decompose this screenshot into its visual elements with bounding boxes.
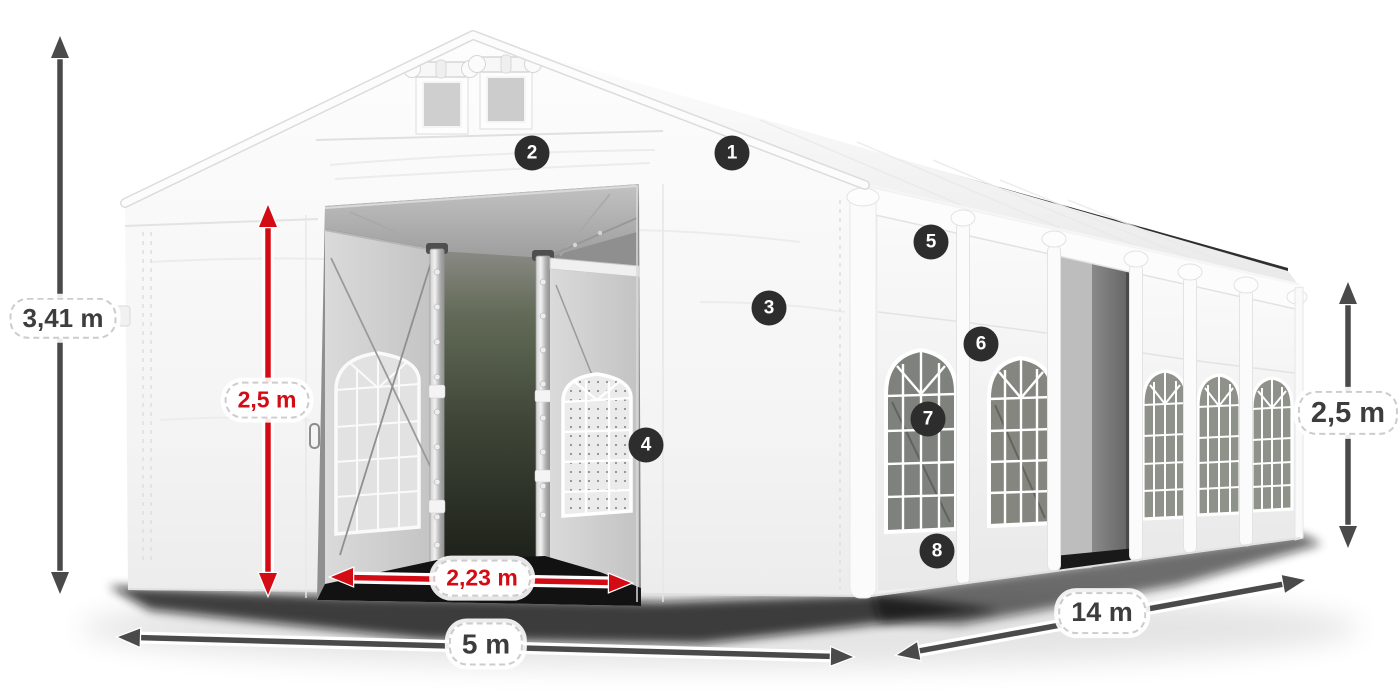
side-height-label: 2,5 m	[1298, 391, 1398, 435]
callout-badge-1[interactable]: 1	[715, 136, 750, 171]
callout-badge-8[interactable]: 8	[920, 534, 955, 569]
front-entrance-interior	[310, 184, 641, 606]
side-window-2	[989, 358, 1053, 526]
side-entrance-open-bay	[1054, 236, 1136, 571]
callout-badge-7[interactable]: 7	[911, 402, 946, 437]
callout-badge-4[interactable]: 4	[629, 428, 664, 463]
side-window-5	[1252, 378, 1292, 511]
side-window-1	[886, 350, 956, 532]
front-width-label: 5 m	[449, 623, 523, 666]
side-length-label: 14 m	[1058, 592, 1146, 634]
total-height-label: 3,41 m	[10, 298, 117, 339]
side-window-4	[1198, 375, 1240, 515]
callout-badge-6[interactable]: 6	[964, 327, 999, 362]
entrance-width-label: 2,23 m	[433, 560, 531, 597]
entrance-height-label: 2,5 m	[225, 382, 310, 419]
callout-badge-2[interactable]: 2	[515, 136, 550, 171]
callout-badge-3[interactable]: 3	[752, 291, 787, 326]
tent-illustration	[0, 0, 1400, 700]
callout-badge-5[interactable]: 5	[914, 225, 949, 260]
side-window-3	[1143, 371, 1187, 519]
diagram-stage: 3,41 m 2,5 m 2,23 m 5 m 14 m 2,5 m 1 2 3…	[0, 0, 1400, 700]
